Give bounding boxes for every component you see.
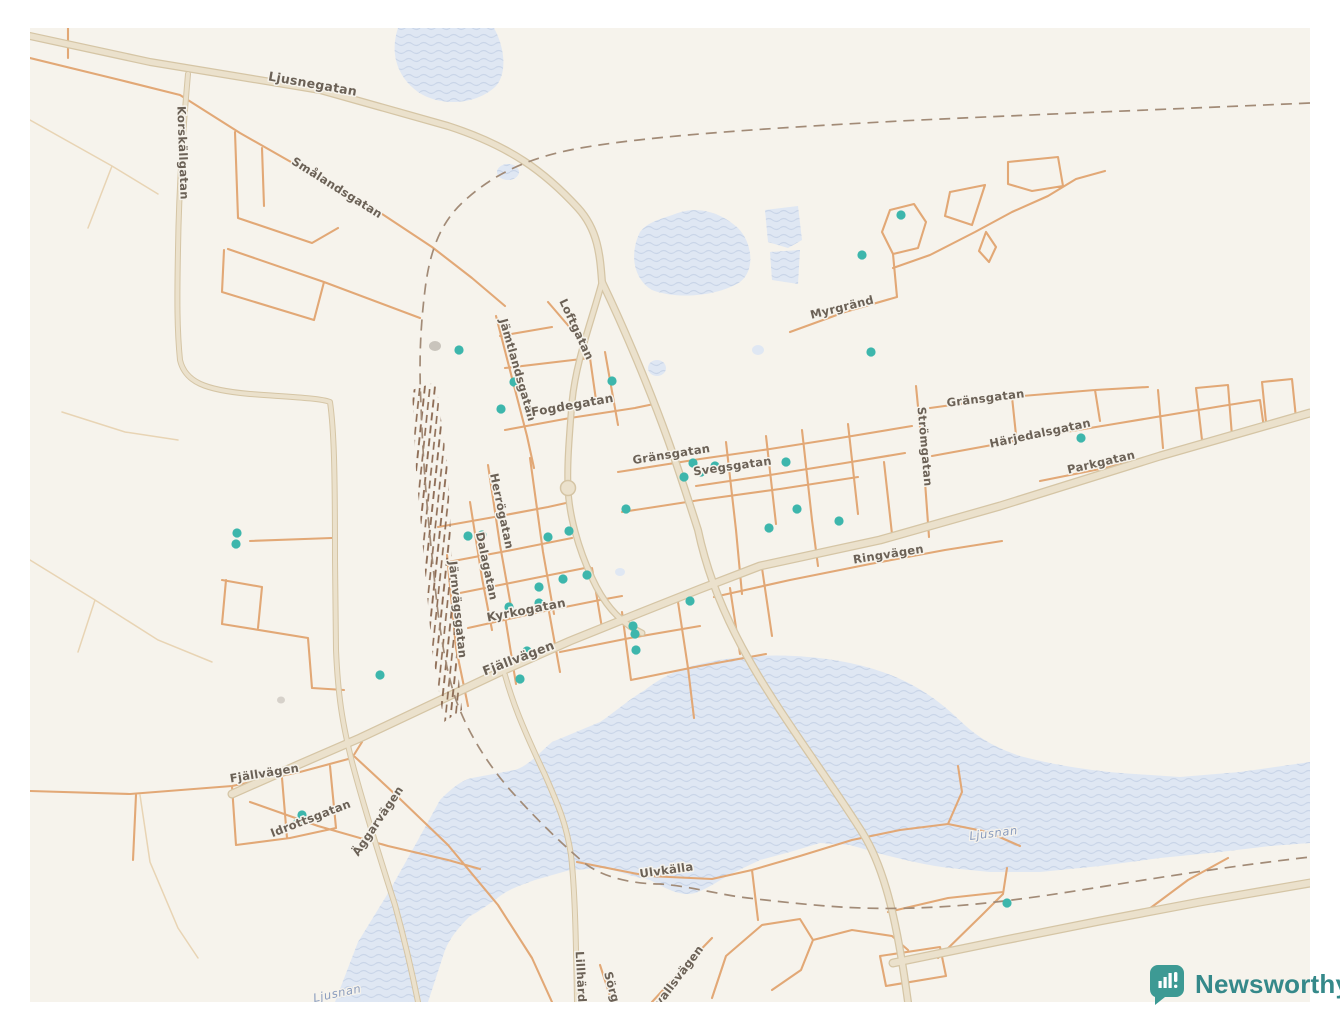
data-point-dot: [621, 504, 630, 513]
data-point-dot: [630, 629, 639, 638]
data-point-dot: [679, 472, 688, 481]
gray-feature: [429, 341, 441, 351]
data-point-dot: [232, 528, 241, 537]
data-point-dot: [764, 523, 773, 532]
data-point-dot: [463, 531, 472, 540]
data-point-dot: [1002, 898, 1011, 907]
data-point-dot: [496, 404, 505, 413]
data-point-dot: [564, 526, 573, 535]
data-point-dot: [607, 376, 616, 385]
data-point-dot: [834, 516, 843, 525]
data-point-dot: [792, 504, 801, 513]
gray-feature: [277, 697, 285, 704]
data-point-dot: [558, 574, 567, 583]
data-point-dot: [685, 596, 694, 605]
data-point-dot: [543, 532, 552, 541]
brand-name: Newsworthy: [1195, 969, 1340, 1000]
newsworthy-logo: Newsworthy: [1148, 963, 1340, 1005]
map-canvas: LjusnegatanKorskällgatanSmålandsgatanJäm…: [30, 28, 1310, 1002]
data-point-dot: [857, 250, 866, 259]
data-point-dot: [628, 621, 637, 630]
data-point-dot: [781, 457, 790, 466]
data-point-dot: [896, 210, 905, 219]
roundabout: [561, 481, 576, 496]
road-label: Lillhärd: [573, 951, 590, 1002]
data-point-dot: [631, 645, 640, 654]
data-point-dot: [866, 347, 875, 356]
data-point-dot: [375, 670, 384, 679]
data-point-dot: [1076, 433, 1085, 442]
data-point-dot: [454, 345, 463, 354]
data-point-dot: [231, 539, 240, 548]
map-frame: LjusnegatanKorskällgatanSmålandsgatanJäm…: [0, 0, 1340, 1032]
data-point-dot: [534, 582, 543, 591]
bar-chart-speech-bubble-icon: [1148, 963, 1186, 1005]
data-point-dot: [582, 570, 591, 579]
data-point-dot: [515, 674, 524, 683]
